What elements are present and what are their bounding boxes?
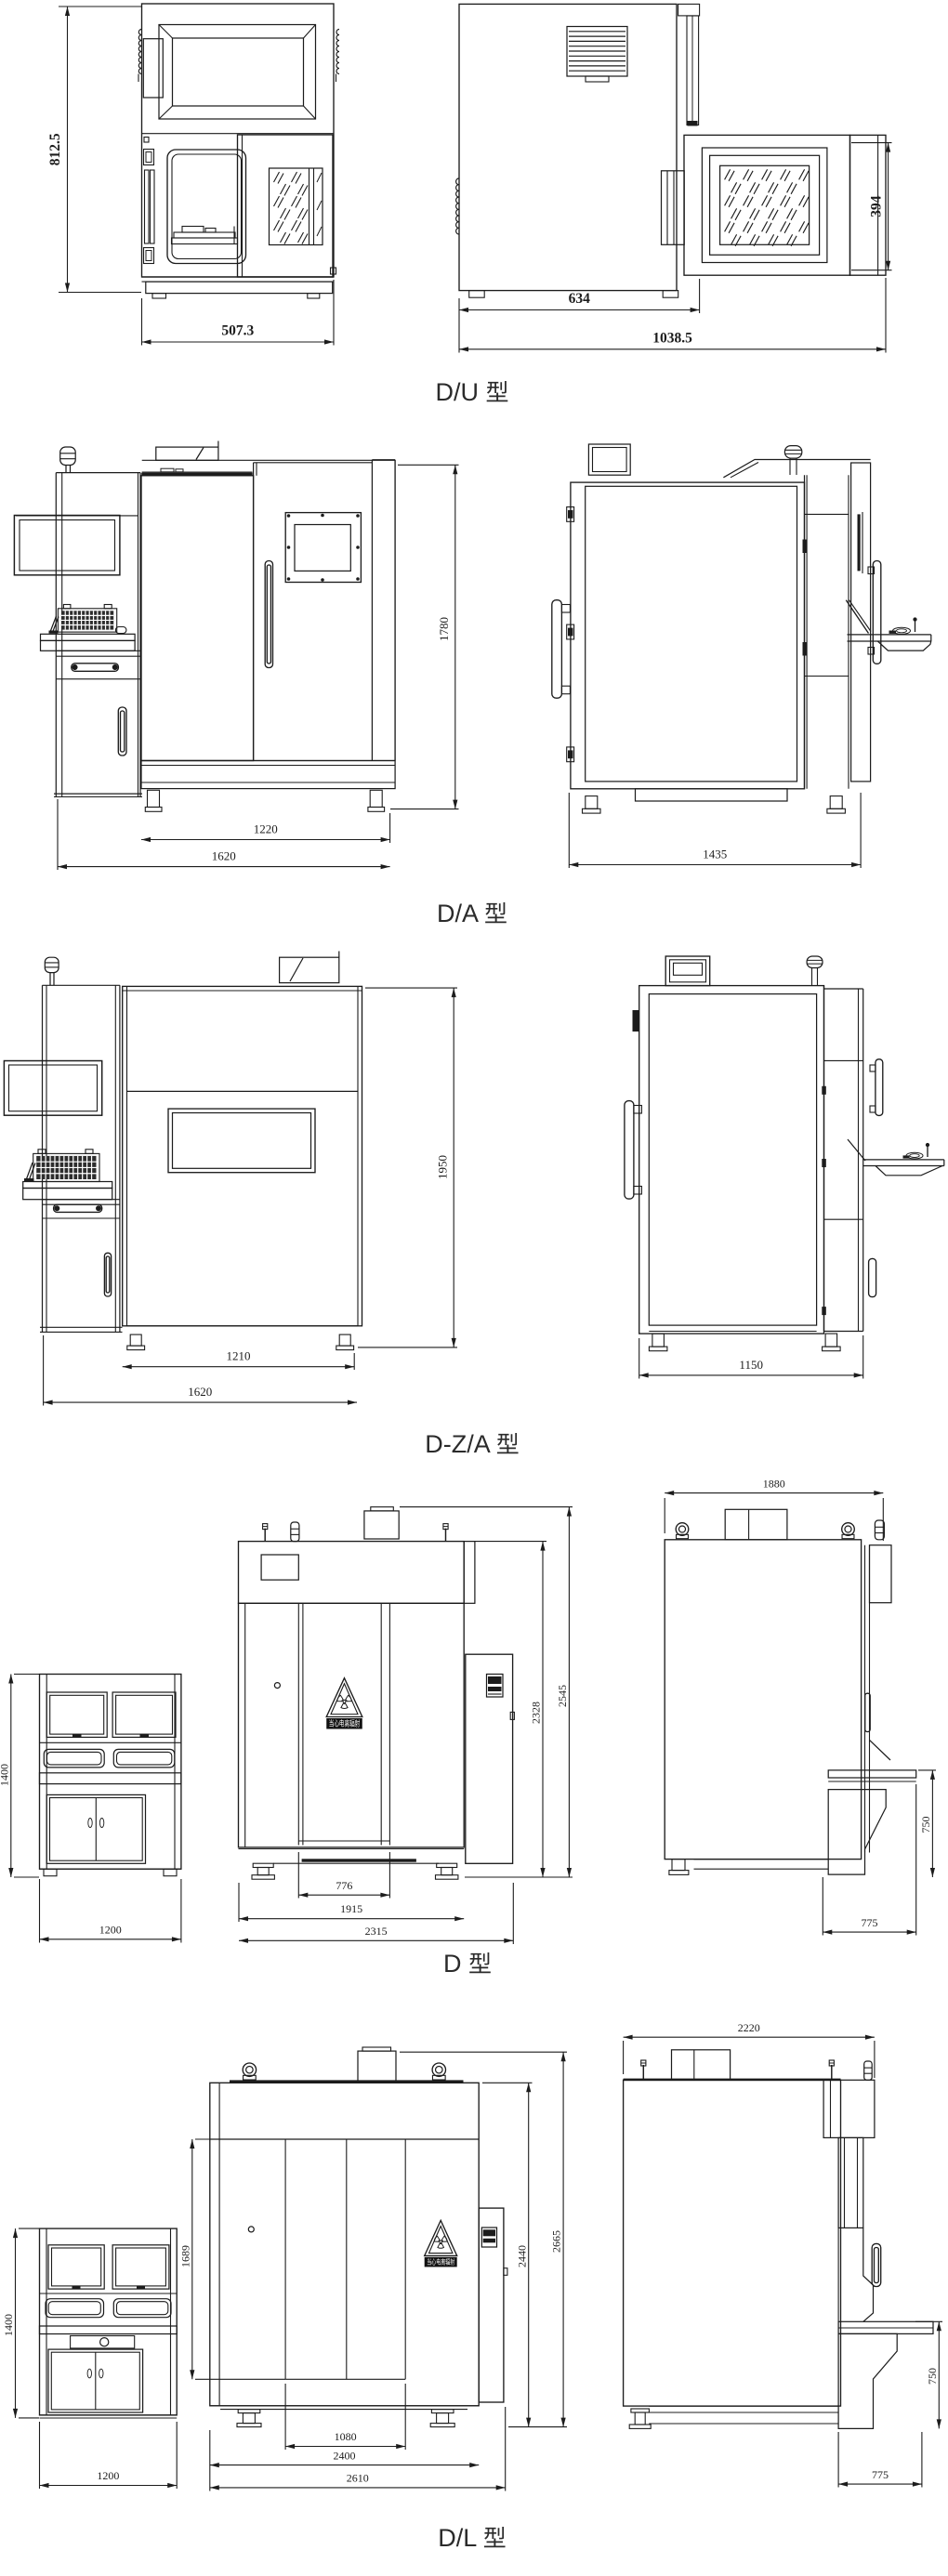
svg-text:D/U 型: D/U 型	[435, 378, 508, 406]
svg-text:1689: 1689	[178, 2245, 191, 2267]
svg-text:2400: 2400	[334, 2449, 356, 2462]
svg-text:750: 750	[919, 1817, 932, 1833]
svg-text:2328: 2328	[530, 1702, 543, 1724]
svg-text:1915: 1915	[340, 1902, 362, 1915]
svg-text:1780: 1780	[437, 617, 451, 641]
svg-text:776: 776	[336, 1879, 352, 1892]
svg-text:2610: 2610	[347, 2472, 369, 2485]
svg-text:507.3: 507.3	[221, 323, 254, 339]
svg-text:2545: 2545	[556, 1685, 569, 1707]
svg-text:1150: 1150	[739, 1358, 763, 1372]
svg-text:812.5: 812.5	[47, 133, 63, 165]
svg-text:1435: 1435	[703, 848, 727, 861]
svg-text:634: 634	[569, 291, 591, 307]
svg-text:1200: 1200	[99, 1923, 122, 1936]
svg-text:1080: 1080	[335, 2430, 357, 2443]
svg-text:1620: 1620	[212, 849, 236, 863]
svg-text:当心电离辐射: 当心电离辐射	[427, 2257, 454, 2267]
svg-text:D/A 型: D/A 型	[437, 900, 507, 927]
svg-text:750: 750	[926, 2368, 939, 2385]
svg-text:D/L 型: D/L 型	[438, 2524, 507, 2552]
svg-text:1200: 1200	[97, 2469, 119, 2482]
svg-text:D-Z/A 型: D-Z/A 型	[425, 1430, 520, 1458]
svg-text:394: 394	[869, 195, 885, 217]
svg-text:1038.5: 1038.5	[652, 330, 692, 346]
svg-text:2220: 2220	[738, 2021, 760, 2034]
svg-text:1620: 1620	[188, 1385, 212, 1399]
svg-text:1210: 1210	[226, 1349, 250, 1363]
svg-text:1220: 1220	[254, 822, 278, 836]
svg-text:775: 775	[862, 1916, 878, 1929]
svg-text:2440: 2440	[515, 2245, 528, 2267]
svg-text:当心电离辐射: 当心电离辐射	[329, 1719, 361, 1728]
svg-text:1950: 1950	[436, 1155, 450, 1179]
svg-text:775: 775	[872, 2468, 889, 2481]
svg-text:1880: 1880	[763, 1477, 785, 1490]
svg-text:2315: 2315	[365, 1925, 388, 1938]
svg-text:D 型: D 型	[443, 1950, 492, 1978]
svg-text:2665: 2665	[550, 2230, 563, 2253]
svg-text:1400: 1400	[2, 2314, 15, 2336]
svg-text:1400: 1400	[0, 1764, 11, 1786]
